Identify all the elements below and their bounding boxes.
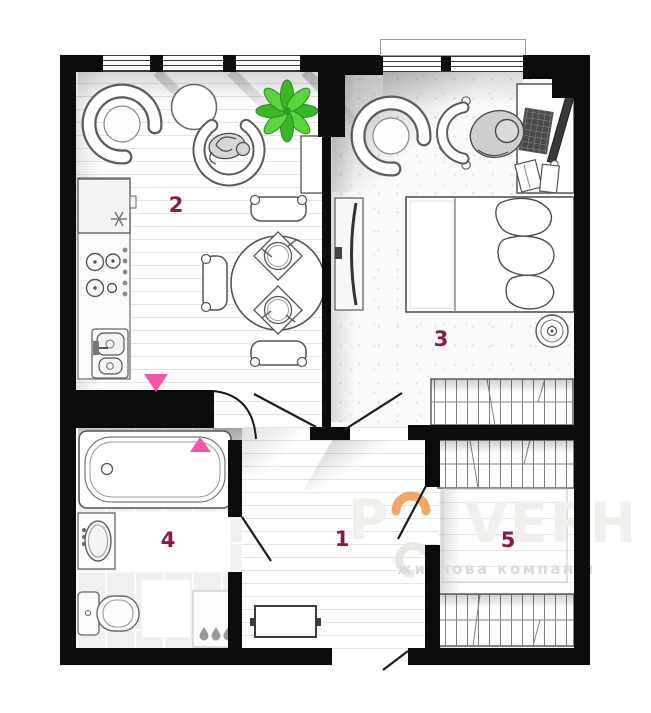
floor-plan: P V E R H житлова компанія <box>0 0 651 713</box>
doormat <box>250 606 321 637</box>
wall-right <box>574 55 590 665</box>
bedroom-wardrobe <box>431 379 573 425</box>
kitchen-sink <box>92 329 128 378</box>
shower-drain-zone <box>193 591 233 647</box>
wall-bottom-right <box>408 648 590 665</box>
wall-bottom-left <box>60 648 332 665</box>
bathroom-sink <box>78 513 115 569</box>
window-mullion-2 <box>223 55 236 72</box>
books <box>515 160 559 193</box>
divider-wall-top <box>318 55 345 137</box>
bedroom-window-sill <box>380 39 526 56</box>
bathroom-right-wall-lower <box>228 572 242 650</box>
bed <box>406 197 574 312</box>
dining-chair-top <box>251 196 307 222</box>
toilet <box>78 592 139 635</box>
kitchen-window <box>103 55 300 72</box>
wall-top-corner-left <box>60 55 103 72</box>
room5-left-wall-lower <box>425 545 440 650</box>
wall-top-corner-right <box>552 55 590 98</box>
bedroom-window-mullion <box>441 56 451 71</box>
window-mullion-1 <box>150 55 163 72</box>
wardrobe-bottom <box>438 594 574 646</box>
armchair-bedroom <box>358 103 424 169</box>
room-label-4: 4 <box>161 528 176 552</box>
bathroom-right-wall-upper <box>228 440 242 517</box>
kitchen-bottom-wall <box>60 390 214 428</box>
room-label-2: 2 <box>169 193 184 217</box>
divider-wall <box>322 137 331 428</box>
fridge <box>78 179 136 233</box>
dining-chair-left <box>202 255 228 312</box>
room5-left-wall-upper <box>425 425 440 487</box>
tv <box>335 198 363 310</box>
armchair-kitchen <box>89 91 155 157</box>
cat <box>207 131 249 164</box>
wall-top-bedroom-left <box>345 55 383 75</box>
cat-chair <box>199 125 259 180</box>
bedroom-window <box>383 56 523 72</box>
dining-table <box>231 232 325 334</box>
plant <box>256 80 318 142</box>
bathtub <box>79 431 231 508</box>
room-label-3: 3 <box>434 327 449 351</box>
wardrobe-top <box>438 440 574 488</box>
dining-chair-bottom <box>251 341 307 367</box>
wall-left <box>60 55 76 665</box>
room-label-1: 1 <box>335 527 350 551</box>
divider-wall-foot <box>310 427 350 440</box>
room-label-5: 5 <box>501 528 516 552</box>
floor-speaker <box>536 315 568 347</box>
